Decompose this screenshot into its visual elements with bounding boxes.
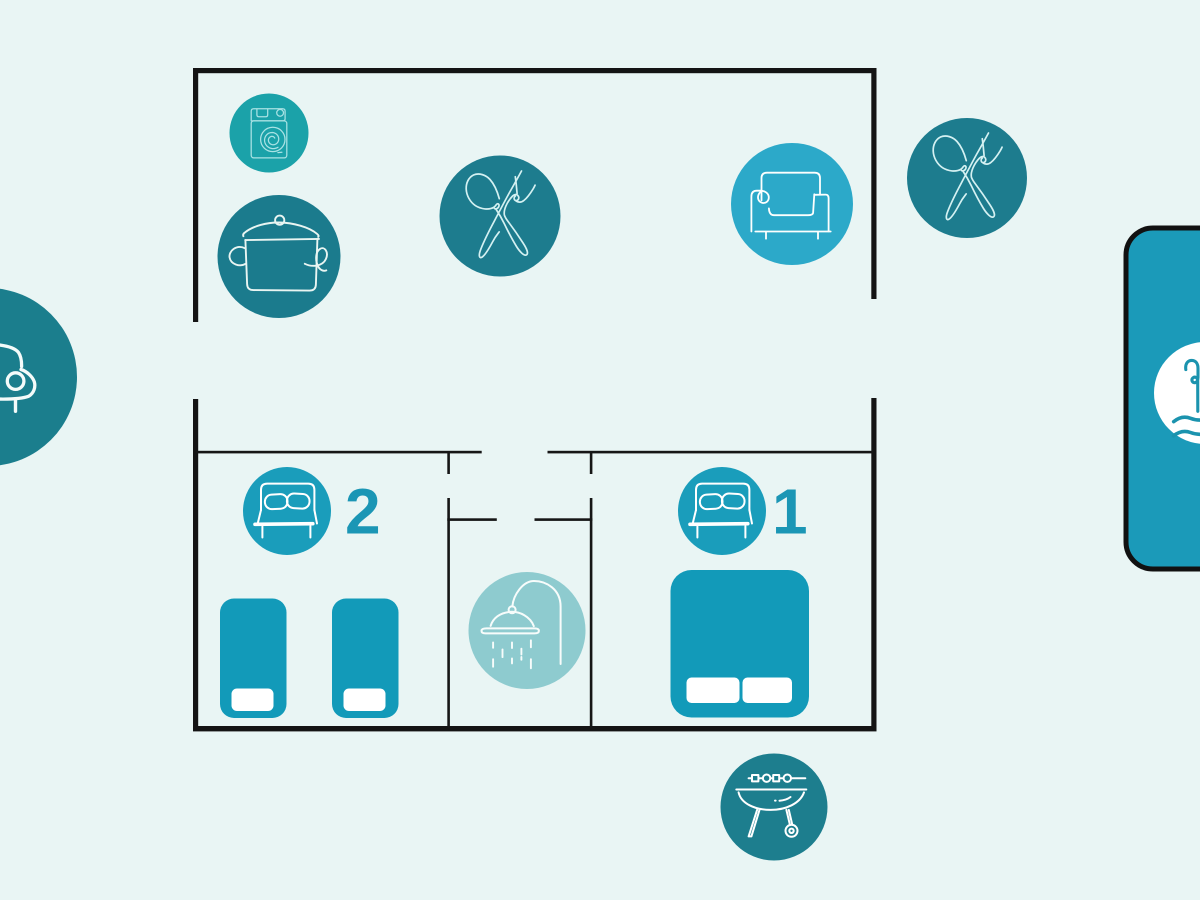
svg-text:1: 1 <box>772 476 808 548</box>
svg-text:2: 2 <box>345 476 381 548</box>
